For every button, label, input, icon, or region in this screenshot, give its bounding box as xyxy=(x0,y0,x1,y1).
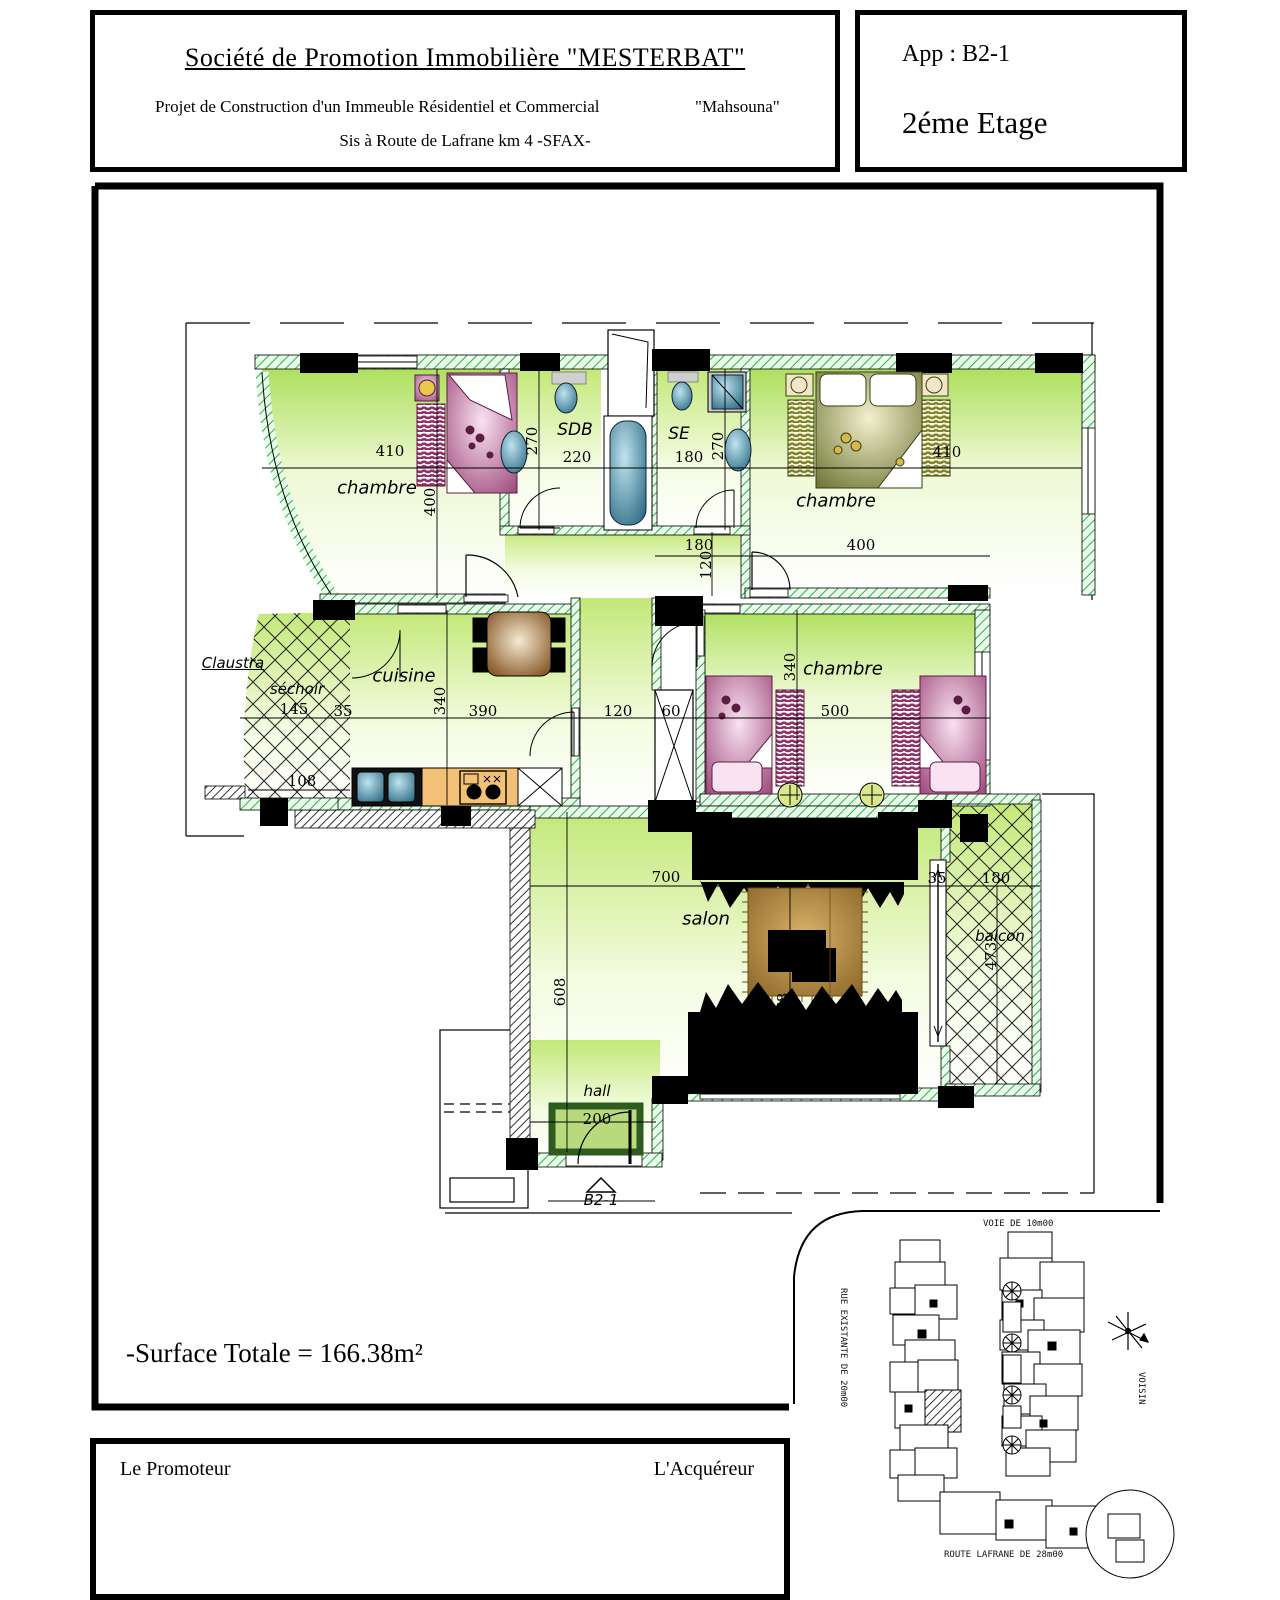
dim-balcon-width: 180 xyxy=(982,869,1011,887)
dim-salon-width: 700 xyxy=(652,868,681,886)
site-neighbor-label: VOISIN xyxy=(1136,1372,1146,1405)
site-plan xyxy=(890,1232,1174,1578)
dim-sechoir-bottom: 108 xyxy=(288,772,317,790)
dim-chambre3-width: 500 xyxy=(821,702,850,720)
dim-salon-depth: 608 xyxy=(551,978,569,1007)
north-compass-icon xyxy=(1108,1312,1148,1350)
dim-chambre2-width: 410 xyxy=(933,443,962,461)
dim-se-width: 180 xyxy=(675,448,704,466)
entry-label-b2-1: B2-1 xyxy=(584,1191,619,1209)
dim-couloir-width: 120 xyxy=(604,702,633,720)
room-label-chambre-1: chambre xyxy=(337,478,417,499)
dim-cuisine-depth: 340 xyxy=(431,687,449,716)
site-building-bottom xyxy=(940,1490,1174,1578)
dim-se-depth: 270 xyxy=(709,432,727,461)
site-road-left: RUE EXISTANTE DE 20m00 xyxy=(838,1288,848,1407)
floor-plan-canvas xyxy=(0,0,1280,1600)
room-label-cuisine: cuisine xyxy=(372,666,435,687)
dim-chambre3-depth: 340 xyxy=(781,653,799,682)
dim-cuisine-width: 390 xyxy=(469,702,498,720)
site-trees xyxy=(1003,1282,1021,1454)
dim-chambre2-width2: 400 xyxy=(847,536,876,554)
furniture-chambre1 xyxy=(415,373,517,493)
site-road-top: VOIE DE 10m00 xyxy=(983,1219,1053,1229)
dim-balcon-wall: 35 xyxy=(927,869,946,887)
label-claustra: Claustra xyxy=(202,654,264,672)
room-label-chambre-2: chambre xyxy=(796,491,876,512)
dim-sechoir-width: 145 xyxy=(280,700,309,718)
room-label-sdb: SDB xyxy=(557,420,593,440)
room-label-sechoir: séchoir xyxy=(270,680,324,698)
dim-chambre1-depth: 400 xyxy=(421,488,439,517)
dim-degagement-depth: 120 xyxy=(697,551,715,580)
site-road-bottom: ROUTE LAFRANE DE 28m00 xyxy=(944,1550,1063,1560)
dim-balcon-depth: 473 xyxy=(982,942,1000,971)
room-label-se: SE xyxy=(668,424,690,444)
dim-sdb-depth: 270 xyxy=(523,427,541,456)
room-label-hall: hall xyxy=(583,1082,610,1100)
dim-sechoir-wall: 35 xyxy=(333,702,352,720)
dim-sdb-width: 220 xyxy=(563,448,592,466)
dim-hall-width: 200 xyxy=(583,1110,612,1128)
blueprint-page: Société de Promotion Immobilière "MESTER… xyxy=(0,0,1280,1600)
dim-gaine-width: 60 xyxy=(661,702,680,720)
furniture-chambre2 xyxy=(786,372,950,488)
dim-salon-inner: 478 xyxy=(774,993,792,1022)
site-building-left xyxy=(890,1240,961,1501)
room-label-salon: salon xyxy=(682,909,730,930)
dim-chambre1-width: 410 xyxy=(376,442,405,460)
room-label-chambre-3: chambre xyxy=(803,659,883,680)
